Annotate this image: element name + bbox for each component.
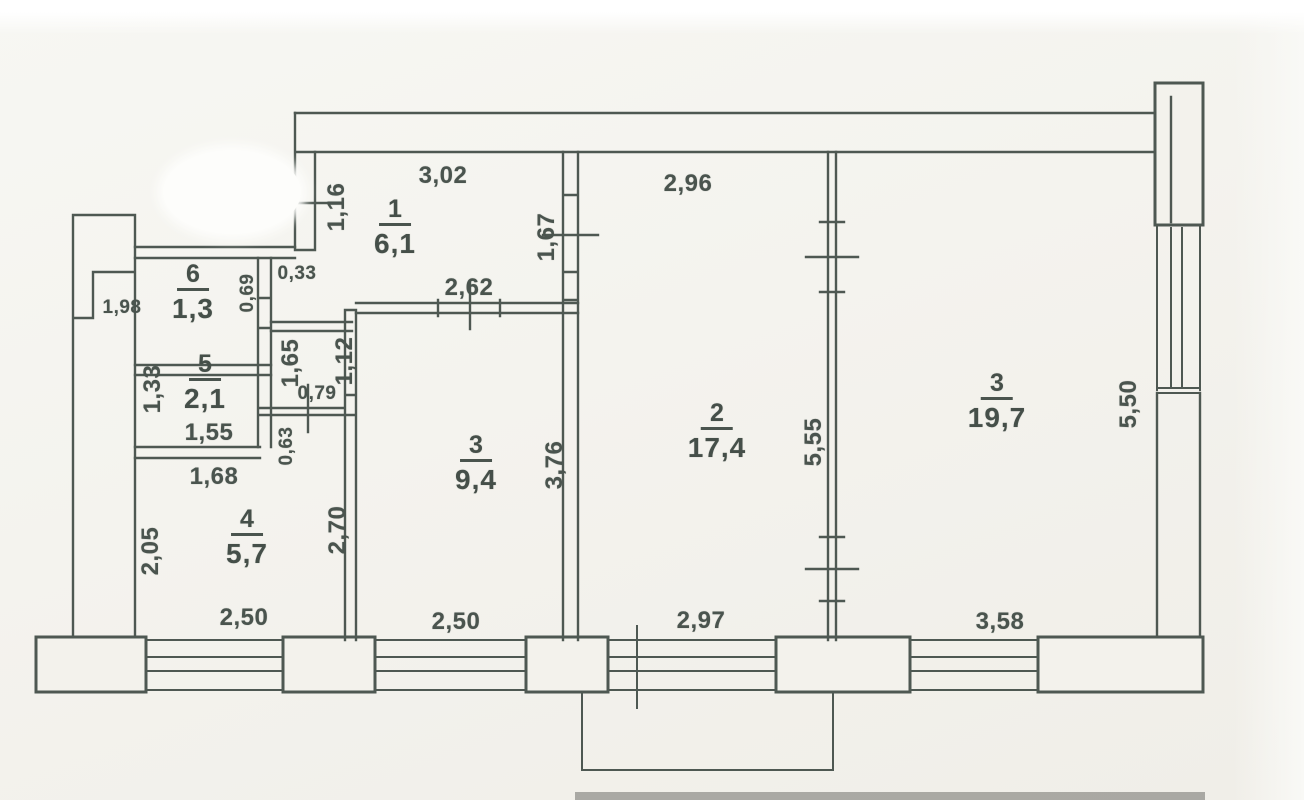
room-label-living: 2 17,4: [688, 400, 747, 464]
dim-room2-depth: 5,55: [800, 418, 828, 467]
top-wall: [295, 113, 1157, 152]
dim-room3-window: 2,50: [432, 608, 481, 636]
wc-bath-right-wall: [258, 258, 271, 447]
room-area: 5,7: [226, 538, 268, 570]
wc-top-wall: [135, 247, 295, 258]
dim-corridor-upper: 1,12: [331, 337, 359, 386]
bottom-window-2: [370, 640, 533, 690]
floor-plan-scan: 1 6,1 6 1,3 5 2,1 4 5,7 3 9,4 2 17,4 3 1…: [0, 0, 1304, 800]
dim-kitchen-window: 2,50: [220, 604, 269, 632]
bottom-window-3: [602, 640, 783, 690]
room-area: 17,4: [688, 432, 747, 464]
dim-kitchen-top: 1,68: [190, 463, 239, 491]
right-window: [1157, 225, 1200, 393]
redaction-oval: [163, 150, 301, 234]
left-outer-wall: [73, 215, 135, 640]
dim-kitchen-right: 2,70: [324, 506, 352, 555]
room-label-bedroom: 3 9,4: [455, 432, 497, 496]
room-area: 19,7: [968, 402, 1027, 434]
dim-wall-stub: 0,33: [278, 263, 317, 285]
bottom-pier-2: [283, 637, 375, 692]
room-number: 1: [379, 196, 411, 226]
bottom-window-4: [905, 640, 1045, 690]
room-area: 9,4: [455, 464, 497, 496]
room-label-hall: 1 6,1: [374, 196, 416, 260]
room-number: 5: [189, 351, 221, 381]
dim-room2-top-width: 2,96: [664, 170, 713, 198]
dim-room2-window: 2,97: [677, 607, 726, 635]
scan-edge-artifact: [575, 792, 1205, 800]
room-label-bath: 5 2,1: [184, 351, 226, 415]
corridor-top-wall: [271, 322, 352, 331]
dim-room3-door-wall: 2,62: [445, 274, 494, 302]
room-label-wc: 6 1,3: [172, 261, 214, 325]
bottom-pier-5: [1038, 637, 1203, 692]
balcony-outline: [582, 694, 833, 770]
dim-hall-top-width: 3,02: [419, 162, 468, 190]
dim-room3-depth: 3,76: [541, 441, 569, 490]
dim-bath-length: 1,55: [185, 419, 234, 447]
room-label-kitchen: 4 5,7: [226, 506, 268, 570]
room2-room19-wall: [806, 152, 858, 640]
bottom-window-1: [140, 640, 290, 690]
room-number: 3: [460, 432, 492, 462]
bottom-pier-1: [36, 637, 146, 692]
room-area: 1,3: [172, 293, 214, 325]
dim-corridor-door: 0,79: [298, 383, 337, 405]
room-number: 2: [701, 400, 733, 430]
room-number: 4: [231, 506, 263, 536]
dim-bath-width: 1,33: [139, 365, 167, 414]
room-number: 3: [981, 370, 1013, 400]
room-number: 6: [177, 261, 209, 291]
bottom-pier-4: [776, 637, 910, 692]
dim-kitchen-left: 2,05: [137, 527, 165, 576]
room-area: 6,1: [374, 228, 416, 260]
room-label-bedroom2: 3 19,7: [968, 370, 1027, 434]
dim-room19-right-depth: 5,50: [1115, 380, 1143, 429]
dim-corridor-lower: 0,63: [276, 427, 298, 466]
dim-room19-window: 3,58: [976, 608, 1025, 636]
dim-left-niche: 1,98: [103, 297, 142, 319]
dim-hall-room2-opening: 1,67: [533, 213, 561, 262]
top-right-pier: [1155, 83, 1203, 225]
dim-wc-door: 0,69: [237, 274, 259, 313]
room-area: 2,1: [184, 383, 226, 415]
dim-corridor-side: 1,65: [277, 339, 305, 388]
dim-hall-entry-door: 1,16: [323, 183, 351, 232]
bottom-pier-3: [526, 637, 608, 692]
